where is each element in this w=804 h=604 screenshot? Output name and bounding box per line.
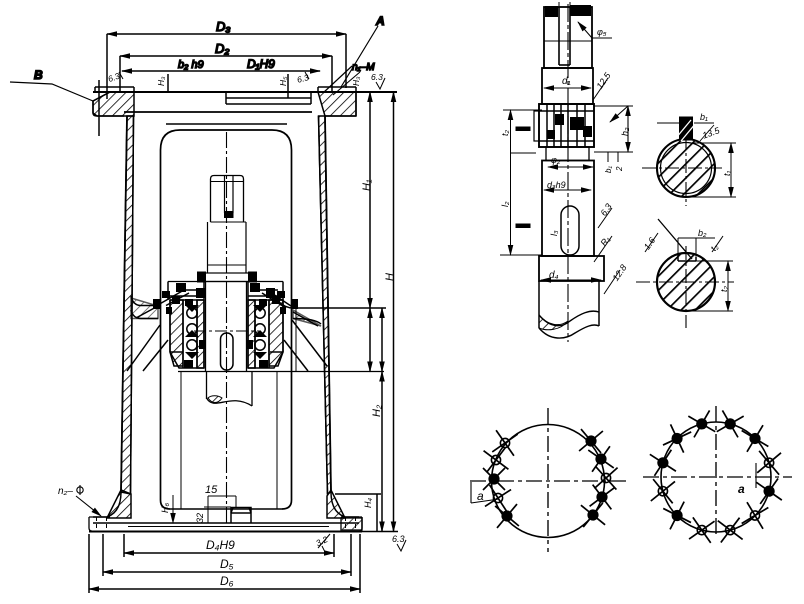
svg-text:l₂: l₂ (500, 201, 510, 207)
svg-text:D₄H9: D₄H9 (206, 538, 235, 552)
svg-text:H: H (384, 273, 396, 281)
svg-text:t₂: t₂ (719, 285, 729, 292)
svg-text:D₃: D₃ (216, 19, 231, 34)
svg-text:t₁: t₁ (722, 170, 732, 176)
svg-text:H₂: H₂ (371, 404, 383, 417)
svg-text:H₃: H₃ (156, 76, 166, 86)
svg-text:H₆: H₆ (160, 503, 170, 513)
svg-text:t₂: t₂ (500, 129, 510, 136)
svg-text:n₂–: n₂– (58, 486, 73, 497)
svg-text:2: 2 (615, 166, 624, 172)
svg-text:B: B (34, 68, 43, 82)
svg-text:D₂: D₂ (215, 41, 229, 56)
svg-text:D₁H9: D₁H9 (247, 57, 275, 71)
svg-text:b₁: b₁ (604, 166, 613, 173)
svg-text:b₂ h9: b₂ h9 (178, 59, 204, 71)
svg-text:b₂: b₂ (698, 228, 707, 238)
svg-text:d₄: d₄ (549, 270, 559, 281)
svg-text:D₅: D₅ (220, 557, 234, 571)
svg-text:A: A (375, 14, 385, 28)
svg-text:d₃h9: d₃h9 (547, 180, 566, 190)
svg-text:h₂: h₂ (620, 127, 630, 136)
svg-text:H₄: H₄ (363, 498, 373, 508)
svg-text:b₁: b₁ (700, 112, 708, 122)
svg-text:d₁: d₁ (562, 76, 571, 87)
svg-text:H₃: H₃ (351, 76, 361, 86)
svg-text:a: a (477, 489, 484, 503)
svg-text:6.3: 6.3 (371, 72, 383, 82)
svg-text:φ₅: φ₅ (597, 27, 607, 37)
svg-text:l₃: l₃ (549, 230, 559, 236)
svg-text:6.3: 6.3 (392, 534, 405, 544)
svg-text:D₆: D₆ (220, 574, 234, 588)
svg-text:H₅: H₅ (278, 76, 288, 86)
svg-text:15: 15 (205, 484, 218, 496)
svg-text:a: a (738, 482, 745, 496)
svg-text:32: 32 (195, 513, 205, 523)
svg-text:H₁: H₁ (361, 179, 373, 191)
